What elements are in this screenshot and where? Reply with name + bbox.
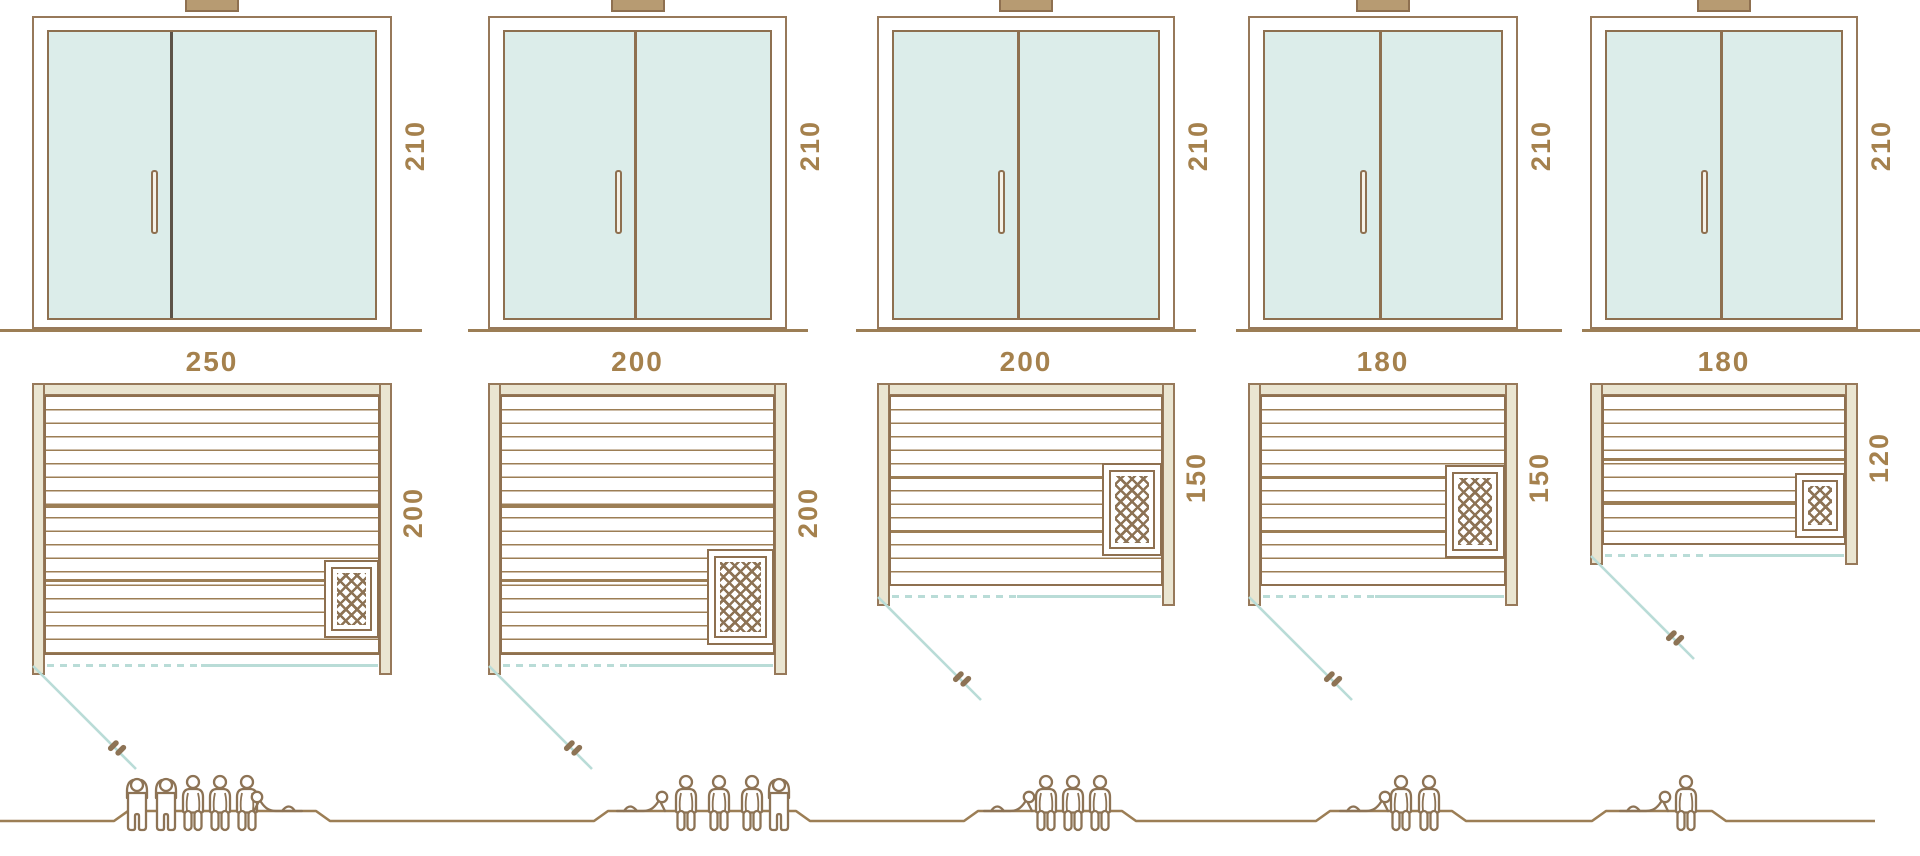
ground-line	[0, 329, 422, 332]
door-height-label: 210	[1528, 120, 1555, 171]
door-height-label: 210	[1868, 120, 1895, 171]
floor-plan: 250	[32, 383, 392, 666]
person-lying-icon	[1340, 792, 1390, 811]
door-elevation: 210	[1248, 0, 1518, 340]
heater-grille	[1802, 480, 1838, 531]
plan-width-label: 180	[1590, 346, 1858, 378]
door-elevation: 210	[877, 0, 1175, 340]
heater-icon	[1102, 463, 1162, 556]
floor-plan: 180	[1590, 383, 1858, 556]
door-frame	[1590, 16, 1858, 329]
sauna-size-diagram: 210 250	[0, 0, 1920, 856]
bench-edge-line	[502, 505, 773, 508]
plan-width-label: 180	[1248, 346, 1518, 378]
person-seated-icon	[1036, 776, 1056, 830]
plan-depth-label: 150	[1183, 452, 1210, 503]
person-seated-icon	[709, 776, 729, 830]
heater-icon	[324, 560, 379, 638]
person-seated-icon	[1391, 776, 1411, 830]
heater-lattice	[337, 573, 366, 625]
person-standing-icon	[156, 779, 176, 830]
person-seated-icon	[1063, 776, 1083, 830]
door-handle-icon	[998, 170, 1005, 234]
roof-vent-icon	[1697, 0, 1751, 12]
person-standing-icon	[127, 779, 147, 830]
roof-vent-icon	[1356, 0, 1410, 12]
door-swing	[1244, 595, 1424, 725]
heater-lattice	[1808, 486, 1832, 525]
roof-vent-icon	[185, 0, 239, 12]
door-frame	[32, 16, 392, 329]
sauna-unit-1: 210 250	[32, 0, 392, 856]
sauna-unit-3: 210 200	[877, 0, 1175, 856]
door-divider	[1720, 32, 1723, 318]
door-handle-icon	[1360, 170, 1367, 234]
swing-handle-icon	[107, 738, 128, 759]
door-swing	[1586, 554, 1766, 684]
floor-plan: 200	[488, 383, 787, 666]
door-frame	[1248, 16, 1518, 329]
heater-lattice	[1115, 476, 1149, 543]
heater-lattice	[1458, 478, 1492, 545]
swing-handle-icon	[952, 669, 973, 690]
swing-handle-icon	[563, 738, 584, 759]
door-glass	[892, 30, 1160, 320]
person-lying-icon	[984, 792, 1034, 811]
right-wall	[379, 383, 392, 675]
plan-depth-label: 150	[1526, 452, 1553, 503]
right-wall	[1505, 383, 1518, 606]
person-seated-icon	[1676, 776, 1696, 830]
heater-icon	[707, 549, 774, 645]
door-height-label: 210	[402, 120, 429, 171]
bench-edge-line	[46, 505, 378, 508]
plan-width-label: 250	[32, 346, 392, 378]
heater-icon	[1445, 465, 1505, 558]
person-seated-icon	[210, 776, 230, 830]
person-lying-icon	[1620, 792, 1670, 811]
person-seated-icon	[1419, 776, 1439, 830]
door-divider	[170, 32, 173, 318]
door-divider	[1379, 32, 1382, 318]
person-standing-icon	[769, 779, 789, 830]
door-elevation: 210	[1590, 0, 1858, 340]
sauna-unit-5: 210 180	[1590, 0, 1858, 856]
sauna-unit-2: 210 200	[488, 0, 787, 856]
person-seated-icon	[742, 776, 762, 830]
door-glass	[1605, 30, 1843, 320]
glass-wall-line	[201, 664, 378, 667]
ground-line	[468, 329, 808, 332]
ground-line	[1236, 329, 1562, 332]
plan-depth-label: 200	[400, 487, 427, 538]
roof-vent-icon	[999, 0, 1053, 12]
right-wall	[774, 383, 787, 675]
capacity-ground-line	[0, 811, 1875, 821]
ground-line	[1582, 329, 1920, 332]
heater-grille	[331, 567, 372, 631]
door-handle-icon	[615, 170, 622, 234]
heater-grille	[1452, 472, 1498, 551]
door-frame	[488, 16, 787, 329]
person-seated-icon	[676, 776, 696, 830]
door-elevation: 210	[488, 0, 787, 340]
right-wall	[1845, 383, 1858, 565]
person-seated-icon	[1090, 776, 1110, 830]
heater-lattice	[720, 562, 761, 632]
capacity-figures	[0, 766, 1920, 856]
roof-vent-icon	[611, 0, 665, 12]
plan-width-label: 200	[877, 346, 1175, 378]
person-seated-icon	[183, 776, 203, 830]
door-divider	[1017, 32, 1020, 318]
door-glass	[47, 30, 377, 320]
door-swing	[873, 595, 1053, 725]
door-height-label: 210	[797, 120, 824, 171]
person-lying-icon	[617, 792, 667, 811]
door-glass	[1263, 30, 1503, 320]
person-lying-icon	[252, 792, 302, 811]
bench-edge-line	[1604, 458, 1844, 461]
heater-grille	[1109, 470, 1155, 549]
door-divider	[634, 32, 637, 318]
person-seated-icon	[237, 776, 257, 830]
floor-plan: 180	[1248, 383, 1518, 597]
heater-grille	[714, 556, 767, 638]
door-glass	[503, 30, 772, 320]
door-handle-icon	[1701, 170, 1708, 234]
swing-handle-icon	[1665, 628, 1686, 649]
door-height-label: 210	[1185, 120, 1212, 171]
plan-depth-label: 200	[795, 487, 822, 538]
door-handle-icon	[151, 170, 158, 234]
floor-plan: 200	[877, 383, 1175, 597]
swing-handle-icon	[1323, 669, 1344, 690]
heater-icon	[1795, 473, 1845, 538]
sauna-unit-4: 210 180	[1248, 0, 1518, 856]
ground-line	[856, 329, 1196, 332]
plan-depth-label: 120	[1866, 432, 1893, 483]
right-wall	[1162, 383, 1175, 606]
plan-width-label: 200	[488, 346, 787, 378]
door-elevation: 210	[32, 0, 392, 340]
door-frame	[877, 16, 1175, 329]
